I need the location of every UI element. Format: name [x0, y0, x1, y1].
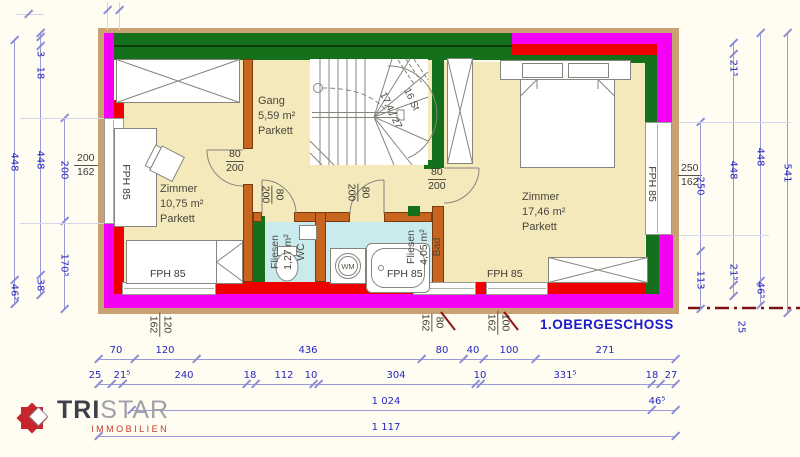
room-area: 5,59 m² [258, 109, 295, 124]
dim: 240 [174, 370, 193, 381]
dim: 25 [89, 370, 102, 381]
window-label-bottom-right: FPH 85 [487, 268, 523, 280]
room-name: Bad [431, 238, 444, 257]
room-label-wc: Fliesen 1,27 m² WC [258, 222, 318, 282]
logo-text: TRISTAR IMMOBILIEN [57, 398, 169, 434]
dim: 304 [386, 370, 405, 381]
dim: 18 [244, 370, 257, 381]
dim: 448 [755, 147, 766, 166]
brand-logo: TRISTAR IMMOBILIEN [12, 398, 169, 438]
window-size-bottom-left: 120 162 [146, 313, 173, 337]
dim: 38 [35, 279, 46, 292]
window-size-bottom: 162 [484, 311, 497, 335]
ext-line [20, 118, 104, 119]
window-size-bottom-mid: 80 162 [418, 314, 445, 332]
bed-right-headboard [501, 61, 631, 80]
pillow-2 [569, 64, 609, 78]
dim: 250 [695, 176, 706, 195]
dim: 170⁵ [59, 253, 70, 276]
room-floor: Parkett [160, 212, 203, 227]
dim: 46⁵ [9, 284, 20, 301]
dim: 3 [35, 51, 46, 57]
bed-right [521, 80, 615, 168]
logo-brand-light: STAR [100, 396, 169, 424]
ext-line [679, 122, 791, 123]
dim: 21⁵ [728, 60, 739, 77]
dim-section-offset: 25 [736, 321, 747, 334]
room-area: 4,05 m² [418, 229, 431, 265]
ext-line [107, 2, 108, 30]
floorplan-page: WM 16 St 17,4 / 27 Zimmer 10,75 m² Parke… [0, 0, 800, 457]
dim: 70 [110, 345, 123, 356]
door-zimmer-right [444, 168, 479, 203]
door-size-wc: 80 200 [258, 186, 285, 204]
window-size-top: 250 [678, 162, 702, 176]
washing-machine-label: WM [341, 262, 354, 271]
window-size-top: 80 [431, 314, 445, 332]
dim: 18 [35, 67, 46, 80]
door-height: 200 [428, 180, 446, 193]
dim: 331⁵ [553, 370, 576, 381]
dim: 113 [695, 270, 706, 289]
dim: 100 [499, 345, 518, 356]
window-size-bottom: 162 [418, 314, 431, 332]
window-size-top: 200 [74, 152, 98, 166]
door-height: 200 [258, 186, 271, 204]
room-area: 10,75 m² [160, 197, 203, 212]
window-label-left: FPH 85 [120, 152, 132, 212]
door-height: 200 [344, 184, 357, 202]
room-name: Gang [258, 94, 295, 109]
window-label-bottom-mid: FPH 85 [387, 268, 423, 280]
logo-star-icon [12, 398, 52, 438]
ext-line [679, 235, 769, 236]
dim: 46⁵ [649, 396, 666, 407]
dim: 120 [155, 345, 174, 356]
dim: 10 [305, 370, 318, 381]
dim: 448 [9, 152, 20, 171]
dim: 448 [728, 160, 739, 179]
logo-brand-bold: TRI [57, 396, 100, 424]
logo-subtitle: IMMOBILIEN [57, 424, 169, 434]
dim: 27 [665, 370, 678, 381]
window-label-right: FPH 85 [646, 154, 658, 214]
room-label-zimmer-right: Zimmer 17,46 m² Parkett [522, 190, 565, 235]
dim: 21⁵ [728, 264, 739, 281]
dim: 271 [595, 345, 614, 356]
window-size-top: 120 [159, 313, 173, 337]
dim: 18 [646, 370, 659, 381]
dim: 112 [274, 370, 293, 381]
room-label-gang: Gang 5,59 m² Parkett [258, 94, 295, 139]
room-name: Zimmer [522, 190, 565, 205]
ext-line [20, 223, 104, 224]
room-name: Zimmer [160, 182, 203, 197]
window-label-bottom-left: FPH 85 [150, 268, 186, 280]
room-area: 1,27 m² [282, 234, 295, 270]
window-size-left: 200 162 [74, 152, 98, 179]
dim: 10 [474, 370, 487, 381]
dim: 541 [782, 163, 793, 182]
page-title: 1.OBERGESCHOSS [540, 317, 674, 332]
door-size-zimmer-right: 80 200 [428, 166, 446, 193]
dim: 21⁵ [114, 370, 131, 381]
window-size-bottom-right: 100 162 [484, 311, 511, 335]
room-floor: Fliesen [405, 230, 418, 264]
ext-line [119, 2, 120, 30]
ext-line [16, 14, 44, 15]
dim: 80 [436, 345, 449, 356]
door-width: 80 [271, 186, 285, 204]
room-floor: Parkett [258, 124, 295, 139]
dim: 1 024 [372, 396, 401, 407]
room-floor: Fliesen [269, 235, 282, 269]
door-height: 200 [226, 162, 244, 175]
door-size-zimmer-left: 80 200 [226, 148, 244, 175]
dim: 200 [59, 160, 70, 179]
dim: 40 [467, 345, 480, 356]
window-size-bottom: 162 [146, 313, 159, 337]
dim: 448 [35, 150, 46, 169]
window-size-bottom: 162 [74, 166, 98, 179]
door-width: 80 [357, 184, 371, 202]
dim: 1 117 [372, 422, 401, 433]
room-floor: Parkett [522, 220, 565, 235]
dim: 436 [298, 345, 317, 356]
dim: 46⁵ [755, 282, 766, 299]
door-width: 80 [226, 148, 244, 162]
room-name: WC [295, 243, 308, 261]
door-width: 80 [428, 166, 446, 180]
room-label-zimmer-left: Zimmer 10,75 m² Parkett [160, 182, 203, 227]
pillow-1 [523, 64, 563, 78]
door-size-bad: 80 200 [344, 184, 371, 202]
room-area: 17,46 m² [522, 205, 565, 220]
window-size-top: 100 [497, 311, 511, 335]
